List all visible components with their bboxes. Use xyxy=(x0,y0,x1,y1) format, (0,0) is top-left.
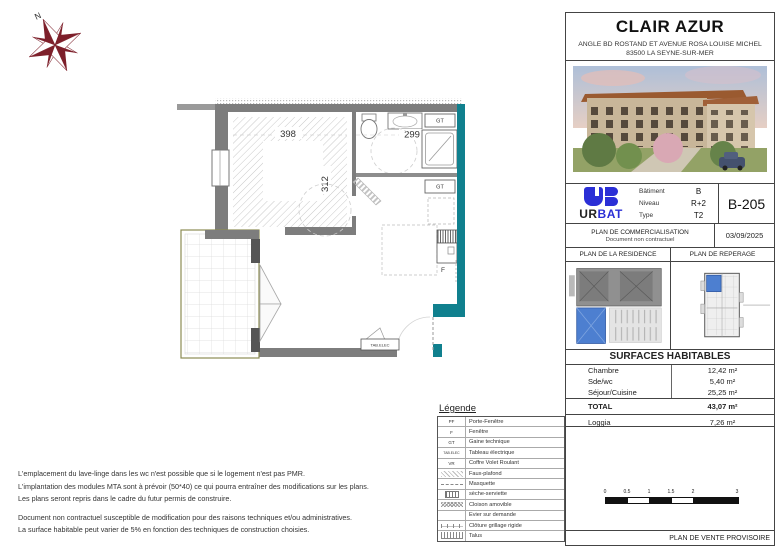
note-line: La surface habitable peut varier de 5% e… xyxy=(18,524,438,537)
table-row: Sde/wc5,40 m² xyxy=(566,376,774,387)
seche-serviette-swatch xyxy=(445,491,459,498)
total-label: TOTAL xyxy=(566,402,671,411)
reperage-plan-thumbnail xyxy=(670,262,774,349)
urbat-logo: URBAT xyxy=(566,184,636,223)
table-row: Chambre12,42 m² xyxy=(566,365,774,376)
cloture-swatch xyxy=(441,524,463,528)
scale-tick: 3 xyxy=(732,489,742,495)
legend-label: Gaine technique xyxy=(466,438,564,447)
talus-swatch xyxy=(441,532,463,539)
note-line: Document non contractuel susceptible de … xyxy=(18,512,438,525)
masquette-swatch xyxy=(441,484,463,485)
surfaces-column-divider xyxy=(671,365,672,398)
legend-row: VRCoffre Volet Roulant xyxy=(438,459,564,469)
legend-row: Masquette xyxy=(438,479,564,489)
batiment-label: Bâtiment xyxy=(636,188,679,195)
loggia-label: Loggia xyxy=(566,418,671,427)
legend-title: Légende xyxy=(439,403,565,414)
plan-sheet: { "compass": { "north": "N" }, "plan": {… xyxy=(0,0,780,551)
loggia-value: 7,26 m² xyxy=(671,418,774,427)
logo-text-blue: BAT xyxy=(598,207,623,221)
door-swing-arc xyxy=(397,317,430,350)
faux-plafond-swatch xyxy=(441,471,463,477)
chambre: 398 312 xyxy=(233,112,356,236)
legend-label: Masquette xyxy=(466,479,564,488)
legend-row: Clôture grillage rigide xyxy=(438,521,564,531)
document-footer: PLAN DE VENTE PROVISOIRE xyxy=(566,531,774,545)
stove-icon xyxy=(437,230,457,243)
batiment-value: B xyxy=(679,187,718,196)
bay-door-pane xyxy=(260,304,281,341)
type-label: Type xyxy=(636,212,679,219)
legend-symbol: PF xyxy=(438,417,466,426)
surfaces-table: SURFACES HABITABLES Chambre12,42 m² Sde/… xyxy=(566,350,774,427)
unit-info: URBAT BâtimentB NiveauR+2 TypeT2 B-205 xyxy=(566,184,774,224)
plan-type: PLAN DE COMMERCIALISATION xyxy=(566,229,714,236)
niveau-label: Niveau xyxy=(636,200,679,207)
compass-north-label: N xyxy=(33,10,43,22)
kitchen-counter-dashed xyxy=(382,225,437,275)
scale-tick: 2 xyxy=(688,489,698,495)
north-compass-icon: N xyxy=(18,8,92,82)
legend-table: PFPorte-Fenêtre FFenêtre GTGaine techniq… xyxy=(437,416,565,542)
plan-note: Document non contractuel xyxy=(566,237,714,243)
legend-symbol: TAB.ELEC xyxy=(438,448,466,457)
surface-label: Sde/wc xyxy=(566,377,671,386)
project-header: CLAIR AZUR ANGLE BD ROSTAND ET AVENUE RO… xyxy=(566,13,774,61)
loggia xyxy=(181,230,281,358)
gt-label-1: GT xyxy=(436,119,444,125)
bay-door-pane xyxy=(260,265,281,304)
gt-label-2: GT xyxy=(436,185,444,191)
page-title: CLAIR AZUR xyxy=(566,17,774,37)
legend-row: TAB.ELECTableau électrique xyxy=(438,448,564,458)
highlighted-unit xyxy=(707,275,721,291)
legend-row: Faux-plafond xyxy=(438,469,564,479)
sejour-cuisine: GT F xyxy=(382,180,457,284)
legend-label: Clôture grillage rigide xyxy=(466,521,564,530)
legend-row: FFenêtre xyxy=(438,427,564,437)
floor-plan: 398 312 GT 299 GT F xyxy=(175,88,475,378)
legend-row: GTGaine technique xyxy=(438,438,564,448)
surface-value: 12,42 m² xyxy=(671,366,774,375)
mini-plans xyxy=(566,262,774,350)
sliding-door-icon xyxy=(353,178,381,205)
legend-label: Talus xyxy=(466,531,564,540)
dim-chambre-width: 398 xyxy=(280,129,296,140)
legend-label: Cloison amovible xyxy=(466,500,564,509)
scale-tick: 0 xyxy=(600,489,610,495)
mini-plan-titles: PLAN DE LA RESIDENCE PLAN DE REPERAGE xyxy=(566,248,774,262)
legend-symbol: VR xyxy=(438,459,466,468)
residence-photo xyxy=(566,66,774,184)
scale-tick: 0.5 xyxy=(622,489,632,495)
footer-text: PLAN DE VENTE PROVISOIRE xyxy=(669,535,770,542)
plan-type-row: PLAN DE COMMERCIALISATION Document non c… xyxy=(566,224,774,248)
legend-row: Talus xyxy=(438,531,564,540)
plan-date: 03/09/2025 xyxy=(714,224,774,247)
legend-label: Porte-Fenêtre xyxy=(466,417,564,426)
tableau-electrique: TAB.ELEC xyxy=(361,328,399,350)
notes-block: L'emplacement du lave-linge dans les wc … xyxy=(18,468,438,537)
dim-bath: 299 xyxy=(404,130,420,141)
note-line: L'implantation des modules MTA sont à pr… xyxy=(18,481,438,494)
surface-value: 5,40 m² xyxy=(671,377,774,386)
legend-symbol: F xyxy=(438,427,466,436)
legend-symbol xyxy=(438,511,466,520)
legend-row: sèche-serviette xyxy=(438,490,564,500)
legend-label: Coffre Volet Roulant xyxy=(466,459,564,468)
scale-bar: 0 0.5 1 1.5 2 3 xyxy=(605,489,737,509)
surface-label: Chambre xyxy=(566,366,671,375)
scale-bar-segments xyxy=(605,497,739,504)
legend-label: Evier sur demande xyxy=(466,511,564,520)
surface-label: Séjour/Cuisine xyxy=(566,388,671,397)
residence-plan-title: PLAN DE LA RESIDENCE xyxy=(566,248,670,261)
legend-row: PFPorte-Fenêtre xyxy=(438,417,564,427)
legend-row: Evier sur demande xyxy=(438,511,564,521)
urbat-logo-icon xyxy=(584,187,618,206)
address-line-1: ANGLE BD ROSTAND ET AVENUE ROSA LOUISE M… xyxy=(566,40,774,49)
unit-attributes: BâtimentB NiveauR+2 TypeT2 xyxy=(636,184,718,223)
unit-number: B-205 xyxy=(718,184,774,223)
total-value: 43,07 m² xyxy=(671,402,774,411)
legend: Légende PFPorte-Fenêtre FFenêtre GTGaine… xyxy=(437,403,565,542)
building-render-image xyxy=(573,66,767,172)
legend-label: sèche-serviette xyxy=(466,490,564,499)
toilet-icon xyxy=(361,120,377,139)
legend-label: Tableau électrique xyxy=(466,448,564,457)
surface-value: 25,25 m² xyxy=(671,388,774,397)
scale-area: 0 0.5 1 1.5 2 3 xyxy=(566,427,774,531)
legend-row: Cloison amovible xyxy=(438,500,564,510)
reperage-plan-title: PLAN DE REPERAGE xyxy=(670,248,774,261)
cloison-amovible-swatch xyxy=(441,502,463,507)
scale-tick: 1.5 xyxy=(666,489,676,495)
title-block: CLAIR AZUR ANGLE BD ROSTAND ET AVENUE RO… xyxy=(565,12,775,546)
scale-tick: 1 xyxy=(644,489,654,495)
address-line-2: 83500 LA SEYNE-SUR-MER xyxy=(566,49,774,58)
residence-plan-thumbnail xyxy=(566,262,670,349)
entrance xyxy=(397,317,433,350)
surfaces-title: SURFACES HABITABLES xyxy=(566,350,774,365)
note-line: Les plans seront repris dans le cadre du… xyxy=(18,493,438,506)
table-row: Séjour/Cuisine25,25 m² xyxy=(566,387,774,398)
legend-symbol: GT xyxy=(438,438,466,447)
legend-label: Fenêtre xyxy=(466,427,564,436)
note-line: L'emplacement du lave-linge dans les wc … xyxy=(18,468,438,481)
niveau-value: R+2 xyxy=(679,199,718,208)
total-row: TOTAL43,07 m² xyxy=(566,398,774,414)
tab-elec-label: TAB.ELEC xyxy=(370,343,389,348)
window-label: F xyxy=(441,267,445,274)
type-value: T2 xyxy=(679,211,718,220)
logo-text-black: UR xyxy=(579,207,597,221)
legend-label: Faux-plafond xyxy=(466,469,564,478)
left-window xyxy=(212,150,229,186)
